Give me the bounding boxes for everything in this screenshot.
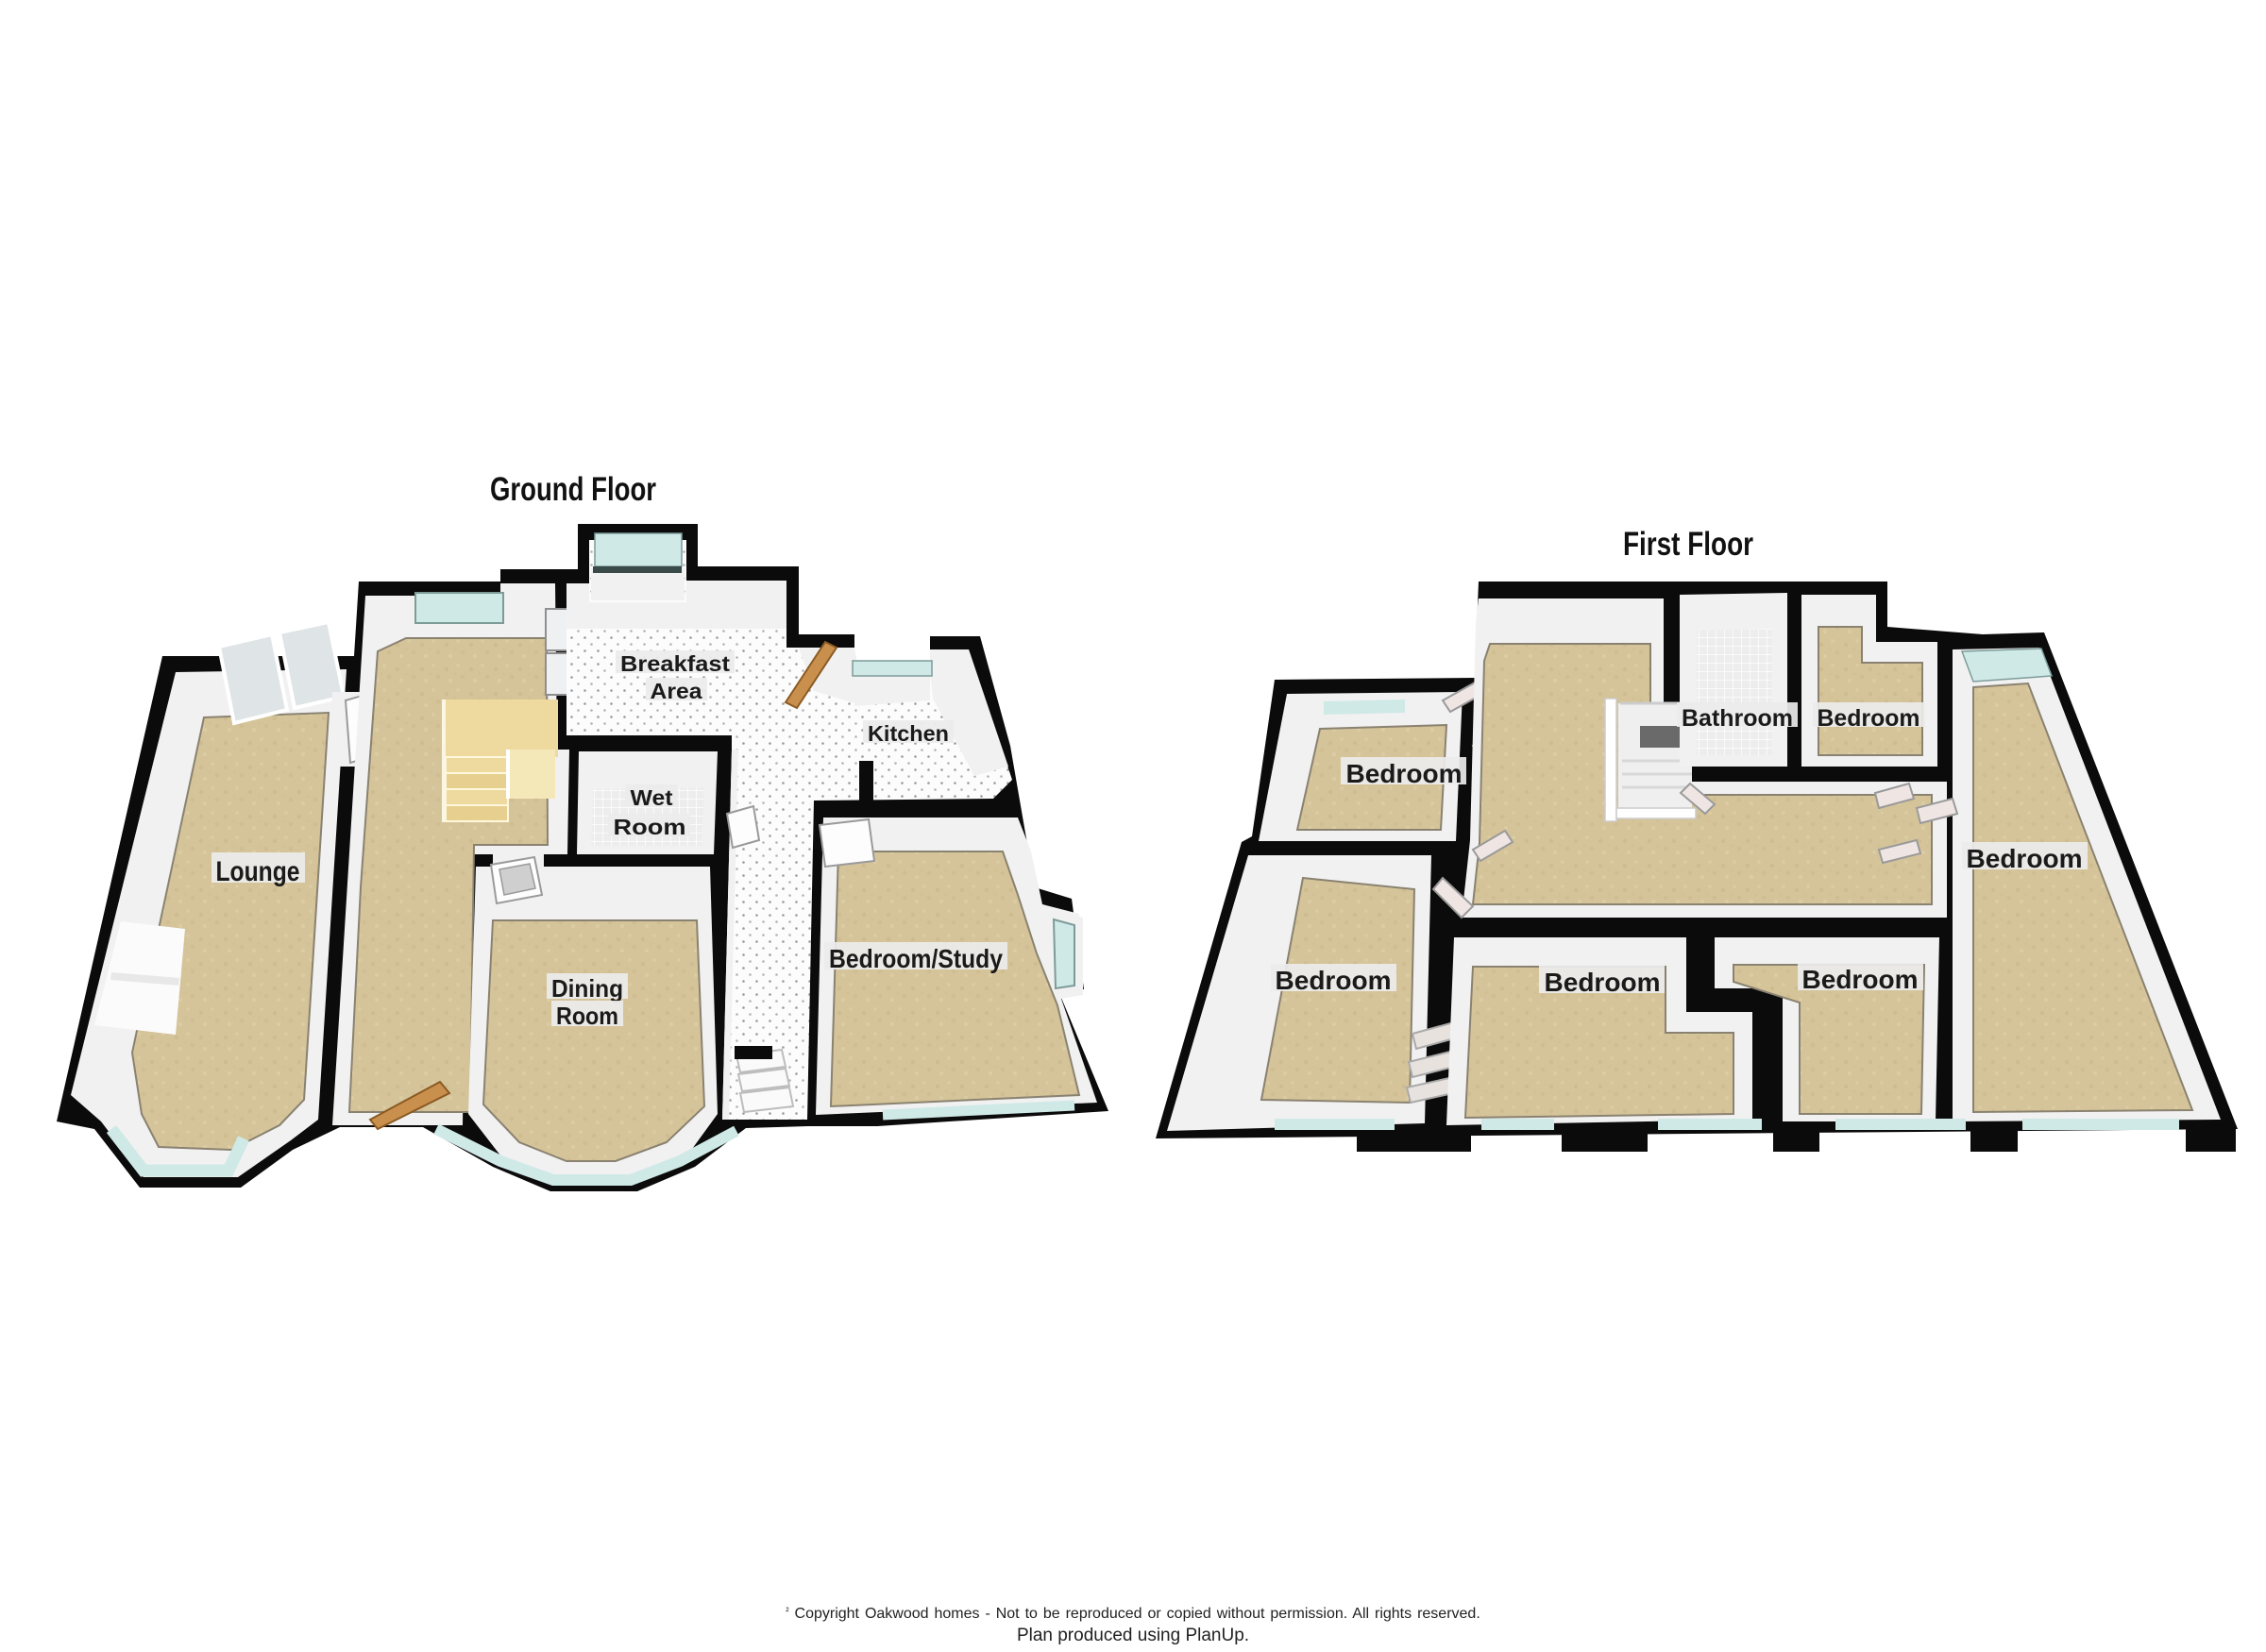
- svg-text:Bedroom: Bedroom: [1276, 966, 1392, 995]
- svg-text:Wet: Wet: [631, 785, 673, 810]
- svg-text:Room: Room: [614, 815, 686, 839]
- svg-text:Kitchen: Kitchen: [868, 721, 949, 746]
- svg-text:Room: Room: [556, 1002, 618, 1030]
- svg-text:Lounge: Lounge: [216, 856, 300, 887]
- svg-text:Ground Floor: Ground Floor: [490, 471, 656, 508]
- svg-text:² Copyright Oakwood homes - No: ² Copyright Oakwood homes - Not to be re…: [786, 1606, 1480, 1622]
- svg-text:Bedroom/Study: Bedroom/Study: [829, 944, 1003, 973]
- svg-text:Bathroom: Bathroom: [1682, 705, 1793, 732]
- svg-text:Bedroom: Bedroom: [1802, 965, 1919, 994]
- svg-text:Dining: Dining: [551, 974, 623, 1003]
- svg-text:Breakfast: Breakfast: [620, 651, 730, 676]
- svg-text:Bedroom: Bedroom: [1818, 705, 1920, 732]
- svg-text:Plan produced using PlanUp.: Plan produced using PlanUp.: [1017, 1626, 1249, 1645]
- svg-text:Bedroom: Bedroom: [1967, 844, 2083, 873]
- svg-text:Bedroom: Bedroom: [1545, 968, 1661, 997]
- svg-text:Bedroom: Bedroom: [1346, 759, 1463, 788]
- svg-text:Area: Area: [651, 679, 702, 703]
- svg-text:First Floor: First Floor: [1623, 526, 1753, 563]
